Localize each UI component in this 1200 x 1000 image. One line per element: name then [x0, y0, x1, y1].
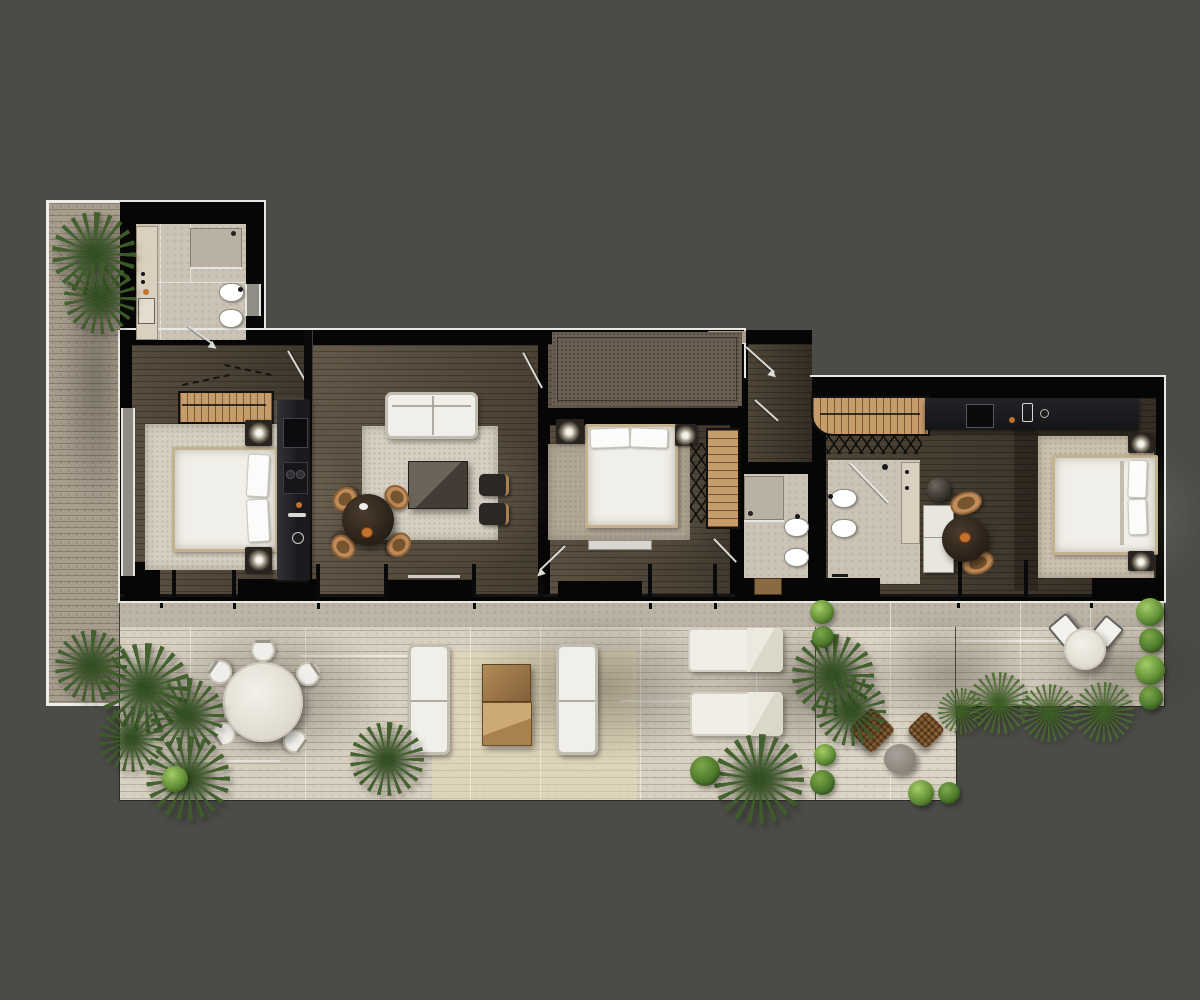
- palm-plant: [146, 736, 230, 820]
- console-shelf-line: [408, 575, 460, 578]
- facade-line: [264, 202, 266, 330]
- soap-accent: [143, 289, 149, 295]
- shower-drain: [231, 231, 236, 236]
- bowl-accent: [361, 527, 373, 538]
- window-console: [386, 580, 474, 598]
- toilet-flush: [238, 287, 243, 292]
- lamp-glow: [248, 422, 270, 444]
- bedroom-left-window: [121, 408, 135, 576]
- palm-plant: [714, 734, 804, 824]
- lamp-glow: [1131, 552, 1151, 572]
- mullion-post: [1024, 560, 1028, 598]
- fern: [1074, 682, 1134, 742]
- round-side-table: [884, 744, 916, 774]
- sink-outline: [138, 298, 155, 324]
- knob: [296, 470, 305, 479]
- pillow: [590, 427, 631, 448]
- facade-line: [120, 601, 1164, 603]
- rack-rail: [820, 413, 920, 415]
- counter-bottles: [1022, 403, 1033, 422]
- faucet-dot: [141, 280, 145, 284]
- bush: [908, 780, 934, 806]
- facade-line: [118, 200, 266, 202]
- wall-stub: [304, 330, 313, 402]
- bush: [690, 756, 720, 786]
- sun-lounger: [688, 628, 783, 672]
- mullion-post: [713, 564, 717, 598]
- sun-lounger: [690, 692, 783, 736]
- bush: [938, 782, 960, 804]
- foot-bench: [588, 540, 652, 550]
- entry-rug-border: [557, 337, 737, 401]
- unit-tv-panel: [283, 418, 308, 448]
- wood-coffee-table: [482, 664, 531, 702]
- counter-sink: [966, 404, 994, 428]
- terrace-chair: [251, 638, 275, 662]
- shower-glass: [744, 520, 784, 522]
- faucet-dot: [905, 486, 909, 490]
- fern: [1020, 684, 1078, 742]
- hanger-rail-marks: [690, 443, 706, 523]
- shower-head: [882, 464, 888, 470]
- shower-glass: [190, 267, 242, 269]
- sofa-cushion-split: [432, 396, 434, 436]
- wood-coffee-table: [482, 702, 532, 746]
- pillow: [1127, 460, 1147, 499]
- unit-ring: [292, 532, 304, 544]
- unit-accent: [296, 502, 302, 508]
- bistro-table: [1064, 628, 1106, 670]
- unit-tray: [288, 513, 306, 517]
- lamp-glow: [558, 421, 580, 443]
- bush: [810, 600, 834, 624]
- bedroom-middle-wardrobe: [706, 428, 740, 529]
- toilet: [219, 283, 244, 302]
- pillow: [630, 427, 669, 448]
- mullion-post: [648, 564, 652, 598]
- vanity-strip: [901, 462, 920, 544]
- facade-line: [1164, 377, 1166, 603]
- terrace-dining-table: [223, 662, 303, 742]
- potted-bush: [1136, 598, 1164, 626]
- pillow: [246, 498, 270, 542]
- outdoor-sofa: [556, 644, 598, 755]
- facade-line: [118, 330, 120, 603]
- mullion-post: [384, 564, 388, 598]
- lamp-glow: [248, 549, 270, 571]
- palm-plant: [350, 722, 424, 796]
- palm-plant: [816, 676, 886, 746]
- towel-ticks: [832, 574, 848, 577]
- bush: [812, 626, 834, 648]
- mullion-post: [472, 564, 476, 598]
- bidet: [831, 519, 857, 538]
- window-console: [238, 579, 318, 598]
- shower-drain: [748, 511, 753, 516]
- bush: [814, 744, 836, 766]
- toilet: [831, 489, 857, 508]
- bidet: [784, 548, 809, 567]
- stool: [479, 503, 509, 525]
- hanger-rail-marks: [818, 434, 922, 454]
- potted-bush: [1139, 628, 1164, 653]
- round-dining-table: [342, 494, 394, 546]
- rack-rail: [182, 404, 266, 406]
- living-sofa: [385, 392, 478, 439]
- faucet-dot: [905, 470, 909, 474]
- bathroom-top-window: [245, 284, 261, 316]
- counter-accent: [1009, 417, 1015, 423]
- sofa-back-line: [392, 405, 470, 407]
- palm-plant: [64, 262, 136, 334]
- entry-rug: [552, 332, 742, 406]
- window-console: [558, 581, 642, 598]
- blanket-fold: [1120, 461, 1124, 545]
- mullion-post: [316, 564, 320, 598]
- basin-stand: [927, 478, 951, 502]
- living-coffee-table: [408, 461, 468, 509]
- bush: [810, 770, 835, 795]
- stool: [479, 474, 509, 496]
- pillow: [246, 453, 270, 497]
- facade-line: [810, 375, 1166, 377]
- counter-knob: [1040, 409, 1049, 418]
- flush-dot: [828, 494, 833, 499]
- lamp-glow: [1131, 434, 1151, 454]
- toilet: [784, 518, 809, 537]
- plate: [359, 503, 368, 510]
- facade-line: [120, 328, 746, 330]
- floorplan-stage: [0, 0, 1200, 1000]
- potted-bush: [1139, 686, 1163, 710]
- wood-mat: [754, 578, 782, 595]
- flush-dot: [795, 514, 800, 519]
- bowl-accent: [959, 532, 971, 543]
- bush: [162, 766, 188, 792]
- knob: [286, 470, 295, 479]
- pillow: [1127, 499, 1147, 536]
- bidet: [219, 309, 243, 328]
- potted-bush: [1135, 655, 1165, 685]
- walkin-closet-rack: [811, 396, 930, 436]
- faucet-dot: [141, 272, 145, 276]
